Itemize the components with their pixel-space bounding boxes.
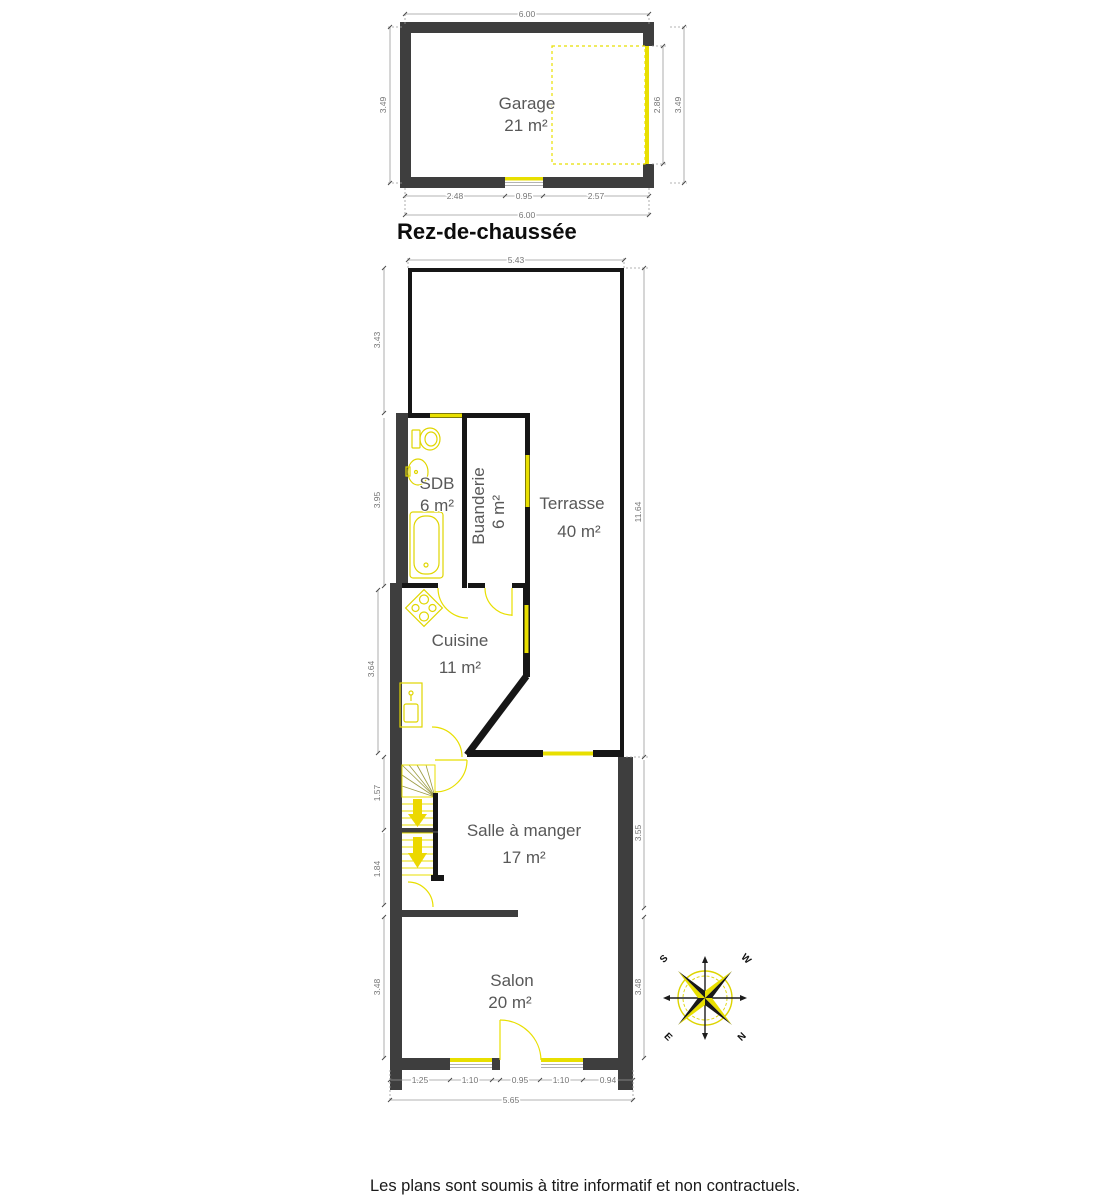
room-label-buanderie: Buanderie: [469, 467, 488, 545]
floor-dim-bottom-2: 1.10: [462, 1075, 479, 1085]
garage-dim-bottom-2: 0.95: [516, 191, 533, 201]
floor-dim-right-2: 3.55: [633, 824, 643, 841]
disclaimer-text: Les plans sont soumis à titre informatif…: [370, 1177, 800, 1196]
floor-dim-top: 5.43: [508, 255, 525, 265]
compass-letter-south: S: [658, 953, 671, 966]
compass-rose: S W E N: [650, 943, 760, 1053]
toilet-icon: [412, 428, 440, 450]
window-icon-sdb: [430, 414, 462, 418]
floor-dim-left-1: 3.43: [372, 331, 382, 348]
garage-dimensions: 6.00 3.49 2.86 3.49 2.48 0.95 2.57: [378, 9, 687, 220]
room-area-terrasse: 40 m²: [557, 522, 601, 541]
garage-dim-right-outer: 3.49: [673, 96, 683, 113]
floorplan-page: Garage 21 m² 6.00 3.49 2.86 3.49: [0, 0, 1113, 1200]
garage-dim-right-inner: 2.86: [652, 96, 662, 113]
garage-dim-bottom-1: 2.48: [447, 191, 464, 201]
floor-dim-bottom-5: 0.94: [600, 1075, 617, 1085]
door-icon-buanderie: [485, 588, 512, 616]
stairs: [402, 765, 444, 881]
door-icon-stairs: [408, 882, 433, 907]
door-icon-sdb: [438, 588, 468, 618]
kitchen-sink-icon: [400, 683, 422, 727]
compass-letter-north: N: [736, 1031, 749, 1044]
garage-area: 21 m²: [504, 116, 548, 135]
garage-door-icon: [552, 46, 649, 164]
floor-dim-bottom-1: 1.25: [412, 1075, 429, 1085]
door-icon-cuisine: [432, 727, 467, 792]
garage-dim-bottom-3: 2.57: [588, 191, 605, 201]
window-icon-salon-right: [541, 1058, 583, 1068]
room-label-cuisine: Cuisine: [432, 631, 489, 650]
page-title: Rez-de-chaussée: [397, 219, 577, 245]
room-label-terrasse: Terrasse: [539, 494, 604, 513]
floor-dim-bottom-total: 5.65: [503, 1095, 520, 1105]
window-icon-buanderie: [526, 455, 530, 507]
door-icon-salon-entry: [500, 1020, 541, 1060]
window-icon-terrasse: [543, 752, 593, 756]
garage-dim-left: 3.49: [378, 96, 388, 113]
floor-dim-left-6: 3.48: [372, 978, 382, 995]
floor-dim-right-3: 3.48: [633, 978, 643, 995]
garage-dim-top: 6.00: [519, 9, 536, 19]
stairs-down-arrow-1: [408, 799, 427, 827]
floor-dim-left-5: 1.84: [372, 860, 382, 877]
stairs-winder-fan: [402, 765, 435, 797]
window-icon-cuisine: [525, 605, 529, 653]
room-label-sdb: SDB: [420, 474, 455, 493]
room-area-salle-a-manger: 17 m²: [502, 848, 546, 867]
stove-icon: [406, 590, 443, 627]
stairs-down-arrow-2: [408, 837, 427, 868]
window-icon-salon-left: [450, 1058, 492, 1068]
room-label-salle-a-manger: Salle à manger: [467, 821, 582, 840]
room-area-sdb: 6 m²: [420, 496, 454, 515]
garage-name: Garage: [499, 94, 556, 113]
floor-dim-left-2: 3.95: [372, 491, 382, 508]
garage-window-icon: [505, 177, 543, 186]
floor-dim-right-1: 11.64: [633, 501, 643, 522]
compass-letter-east: E: [662, 1031, 675, 1044]
garage-label: Garage 21 m²: [499, 94, 556, 135]
room-area-cuisine: 11 m²: [439, 658, 482, 677]
room-labels: SDB 6 m² Buanderie 6 m² Terrasse 40 m² C…: [420, 467, 605, 1012]
bathtub-icon: [410, 512, 443, 578]
floor-dim-bottom-3: 0.95: [512, 1075, 529, 1085]
ground-floor-plan: SDB 6 m² Buanderie 6 m² Terrasse 40 m² C…: [360, 248, 670, 1118]
floor-dim-left-3: 3.64: [366, 660, 376, 677]
floor-dim-bottom-4: 1.10: [553, 1075, 570, 1085]
garage-plan: Garage 21 m² 6.00 3.49 2.86 3.49: [370, 0, 700, 248]
room-area-buanderie: 6 m²: [489, 495, 508, 529]
floor-dim-left-4: 1.57: [372, 784, 382, 801]
room-label-salon: Salon: [490, 971, 533, 990]
floor-walls: [390, 268, 633, 1090]
room-area-salon: 20 m²: [488, 993, 532, 1012]
compass-letter-west: W: [739, 952, 754, 967]
